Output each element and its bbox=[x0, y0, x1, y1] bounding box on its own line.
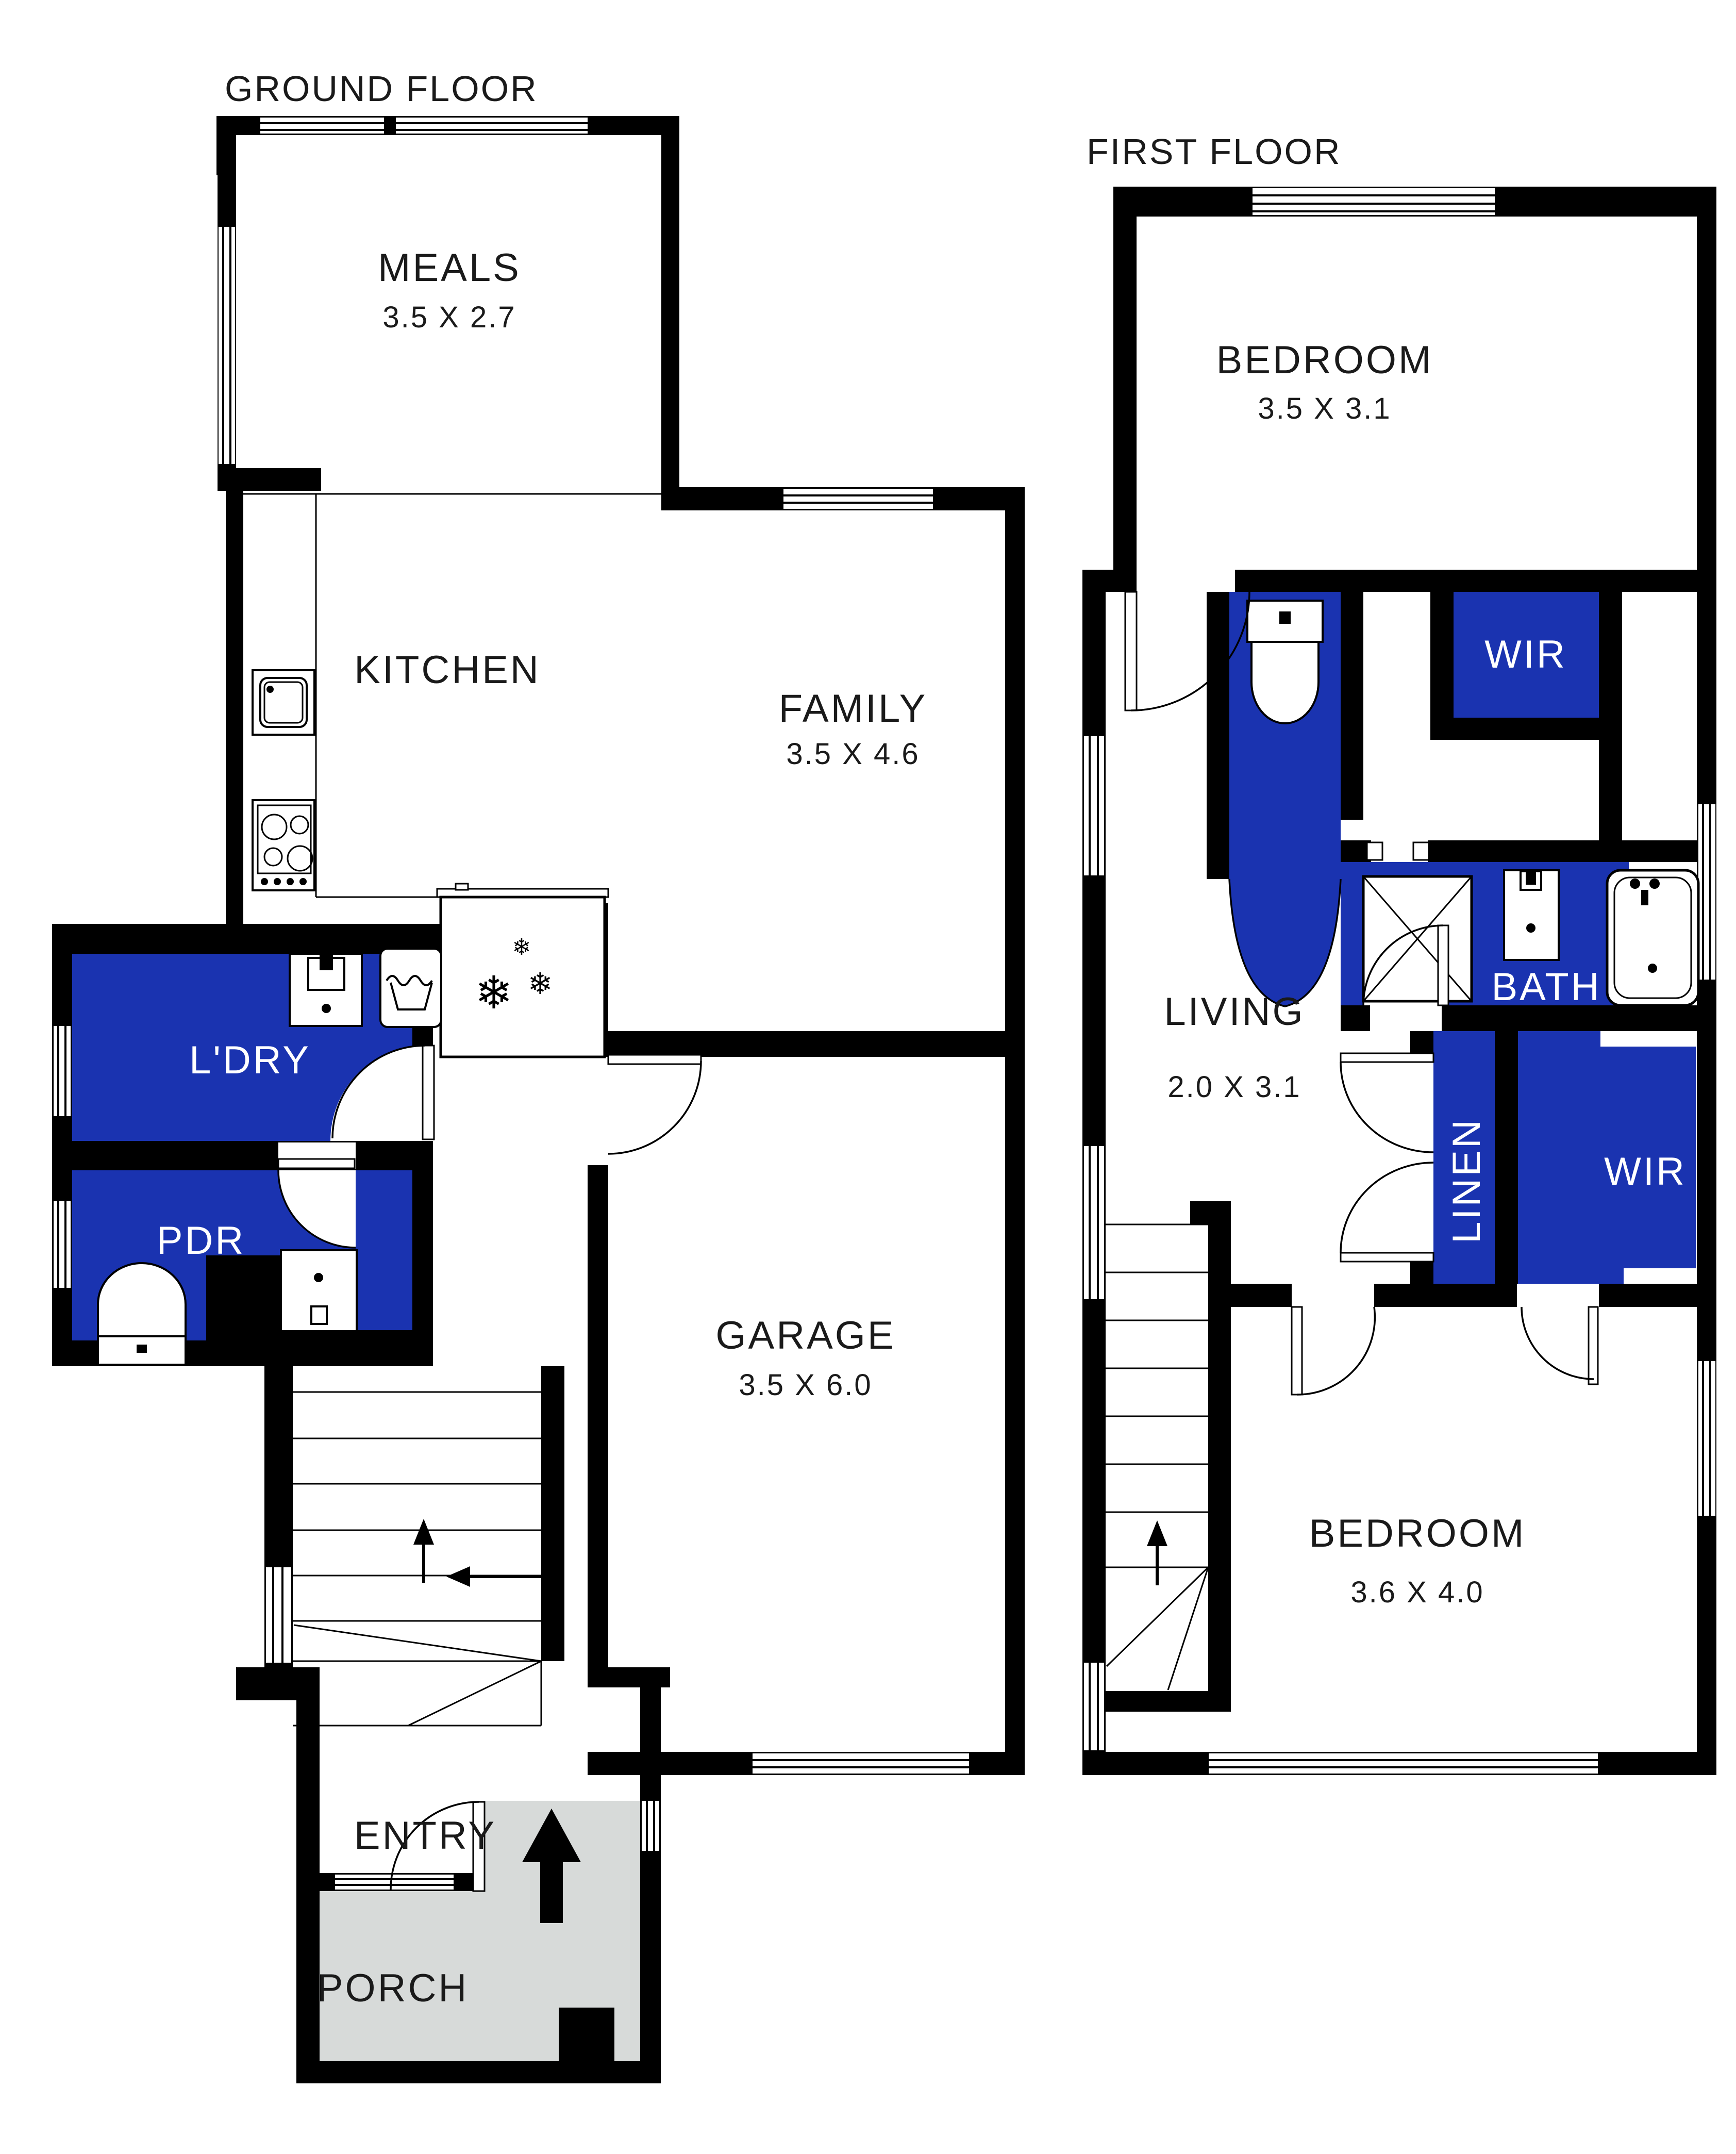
laundry-basin-icon bbox=[290, 954, 362, 1026]
garage-side-door bbox=[608, 1055, 701, 1154]
ground-floor: ❄ ❄ ❄ bbox=[52, 69, 1025, 2083]
garage-dims: 3.5 X 6.0 bbox=[739, 1368, 872, 1402]
bath-vanity-icon bbox=[1504, 870, 1559, 960]
bathtub-icon bbox=[1607, 870, 1698, 1005]
powder-label: PDR bbox=[157, 1219, 245, 1263]
laundry-tub-icon bbox=[380, 949, 441, 1027]
first-stairs bbox=[1106, 1224, 1208, 1690]
bedroom2-label: BEDROOM bbox=[1309, 1512, 1526, 1555]
bath-label: BATH bbox=[1491, 965, 1601, 1009]
kitchen-label: KITCHEN bbox=[354, 648, 541, 692]
snowflake-icon: ❄ bbox=[512, 935, 531, 960]
bedroom1-dims: 3.5 X 3.1 bbox=[1258, 392, 1391, 425]
meals-label: MEALS bbox=[378, 246, 521, 290]
bedroom2-dims: 3.6 X 4.0 bbox=[1350, 1576, 1484, 1609]
snowflake-icon: ❄ bbox=[475, 967, 513, 1018]
stair-landing-door bbox=[1292, 1307, 1375, 1395]
stair-up-arrow-head bbox=[413, 1519, 434, 1545]
floor-plan-page: ❄ ❄ ❄ bbox=[0, 0, 1736, 2154]
meals-dims: 3.5 X 2.7 bbox=[382, 301, 516, 334]
ground-stairs bbox=[293, 1392, 544, 1726]
stair-up-arrow-head bbox=[1147, 1520, 1167, 1546]
linen-doors bbox=[1341, 1053, 1433, 1262]
shower-icon bbox=[1363, 876, 1472, 1001]
porch-label: PORCH bbox=[317, 1966, 469, 2010]
floor-plan: ❄ ❄ ❄ bbox=[0, 0, 1736, 2154]
linen-label: LINEN bbox=[1445, 1118, 1489, 1244]
family-dims: 3.5 X 4.6 bbox=[786, 737, 920, 771]
garage-label: GARAGE bbox=[715, 1314, 895, 1357]
wir2-door bbox=[1522, 1307, 1598, 1384]
snowflake-icon: ❄ bbox=[528, 967, 553, 1001]
entry-label: ENTRY bbox=[354, 1814, 496, 1858]
toilet-icon bbox=[1247, 601, 1323, 723]
cooktop-icon bbox=[253, 800, 314, 890]
fridge-icon: ❄ ❄ ❄ bbox=[437, 884, 608, 1057]
bath-door-jamb bbox=[1413, 842, 1429, 860]
kitchen-sink-icon bbox=[253, 670, 314, 735]
ground-floor-title: GROUND FLOOR bbox=[225, 69, 538, 109]
toilet-icon bbox=[98, 1263, 186, 1365]
first-floor-title: FIRST FLOOR bbox=[1087, 131, 1342, 172]
first-floor: FIRST FLOOR BEDROOM 3.5 X 3.1 WIR BATH L… bbox=[1082, 131, 1716, 1775]
family-label: FAMILY bbox=[779, 687, 928, 731]
wir1-label: WIR bbox=[1484, 633, 1567, 676]
stair-treads bbox=[1106, 1224, 1208, 1690]
bedroom1-label: BEDROOM bbox=[1216, 338, 1433, 382]
stair-treads bbox=[293, 1392, 541, 1726]
wir2-label: WIR bbox=[1604, 1150, 1687, 1194]
laundry-label: L'DRY bbox=[189, 1038, 311, 1082]
living-dims: 2.0 X 3.1 bbox=[1167, 1070, 1301, 1104]
bath-door-jamb bbox=[1367, 842, 1382, 860]
powder-vanity-icon bbox=[281, 1250, 357, 1331]
living-label: LIVING bbox=[1164, 990, 1305, 1034]
stair-turn-arrow-head bbox=[446, 1566, 470, 1587]
